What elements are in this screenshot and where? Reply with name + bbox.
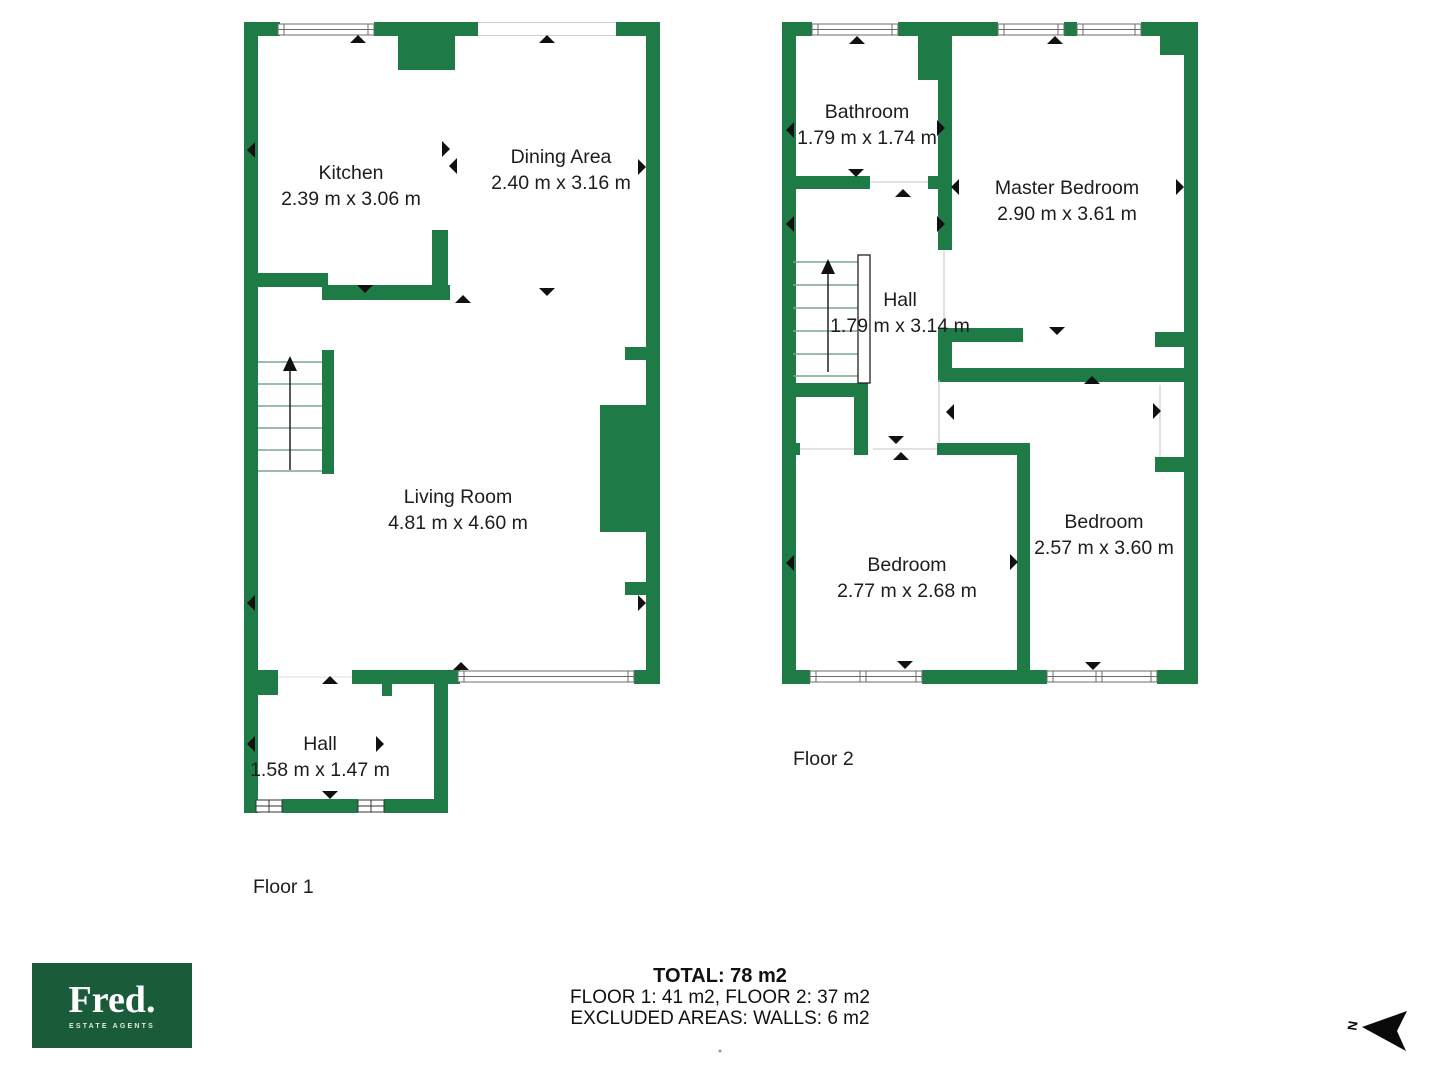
room-label-hall-floor2: Hall 1.79 m x 3.14 m [830,287,970,339]
room-dims: 2.90 m x 3.61 m [995,201,1139,227]
room-label-bathroom: Bathroom 1.79 m x 1.74 m [797,99,937,151]
summary-excluded: EXCLUDED AREAS: WALLS: 6 m2 [570,1008,870,1029]
room-label-hall-floor1: Hall 1.58 m x 1.47 m [250,731,390,783]
room-label-bedroom-left: Bedroom 2.77 m x 2.68 m [837,552,977,604]
room-dims: 2.77 m x 2.68 m [837,578,977,604]
room-dims: 4.81 m x 4.60 m [388,510,528,536]
summary-total: TOTAL: 78 m2 [570,966,870,987]
north-label: N [1344,1020,1360,1032]
logo-brand: Fred. [69,982,156,1018]
north-compass: N [1344,1011,1407,1051]
floor1-wall-opening-band [278,22,616,677]
room-dims: 1.58 m x 1.47 m [250,757,390,783]
room-label-bedroom-right: Bedroom 2.57 m x 3.60 m [1034,509,1174,561]
room-name: Living Room [388,484,528,510]
room-dims: 1.79 m x 1.74 m [797,125,937,151]
estate-agent-logo: Fred. ESTATE AGENTS [32,963,192,1048]
room-name: Bedroom [1034,509,1174,535]
floorplan-page: N Kitchen 2.39 m x 3.06 m Dining Area 2.… [0,0,1440,1080]
artifact-dot [719,1050,722,1053]
room-name: Bedroom [837,552,977,578]
north-arrow-icon [1362,1011,1407,1051]
floor1-walls [244,22,660,813]
room-dims: 2.57 m x 3.60 m [1034,535,1174,561]
room-label-dining-area: Dining Area 2.40 m x 3.16 m [491,144,631,196]
room-dims: 2.39 m x 3.06 m [281,186,421,212]
room-name: Master Bedroom [995,175,1139,201]
floor1-stairs-arrow [283,356,297,470]
room-name: Hall [830,287,970,313]
room-label-living-room: Living Room 4.81 m x 4.60 m [388,484,528,536]
room-dims: 1.79 m x 3.14 m [830,313,970,339]
floor1-label: Floor 1 [253,876,314,899]
logo-tagline: ESTATE AGENTS [69,1023,155,1030]
room-name: Kitchen [281,160,421,186]
summary-floors: FLOOR 1: 41 m2, FLOOR 2: 37 m2 [570,987,870,1008]
area-summary: TOTAL: 78 m2 FLOOR 1: 41 m2, FLOOR 2: 37… [570,966,870,1029]
room-name: Dining Area [491,144,631,170]
room-name: Hall [250,731,390,757]
room-label-kitchen: Kitchen 2.39 m x 3.06 m [281,160,421,212]
room-dims: 2.40 m x 3.16 m [491,170,631,196]
floor2-label: Floor 2 [793,748,854,771]
room-label-master-bedroom: Master Bedroom 2.90 m x 3.61 m [995,175,1139,227]
room-name: Bathroom [797,99,937,125]
floorplan-drawing: N [0,0,1440,1080]
